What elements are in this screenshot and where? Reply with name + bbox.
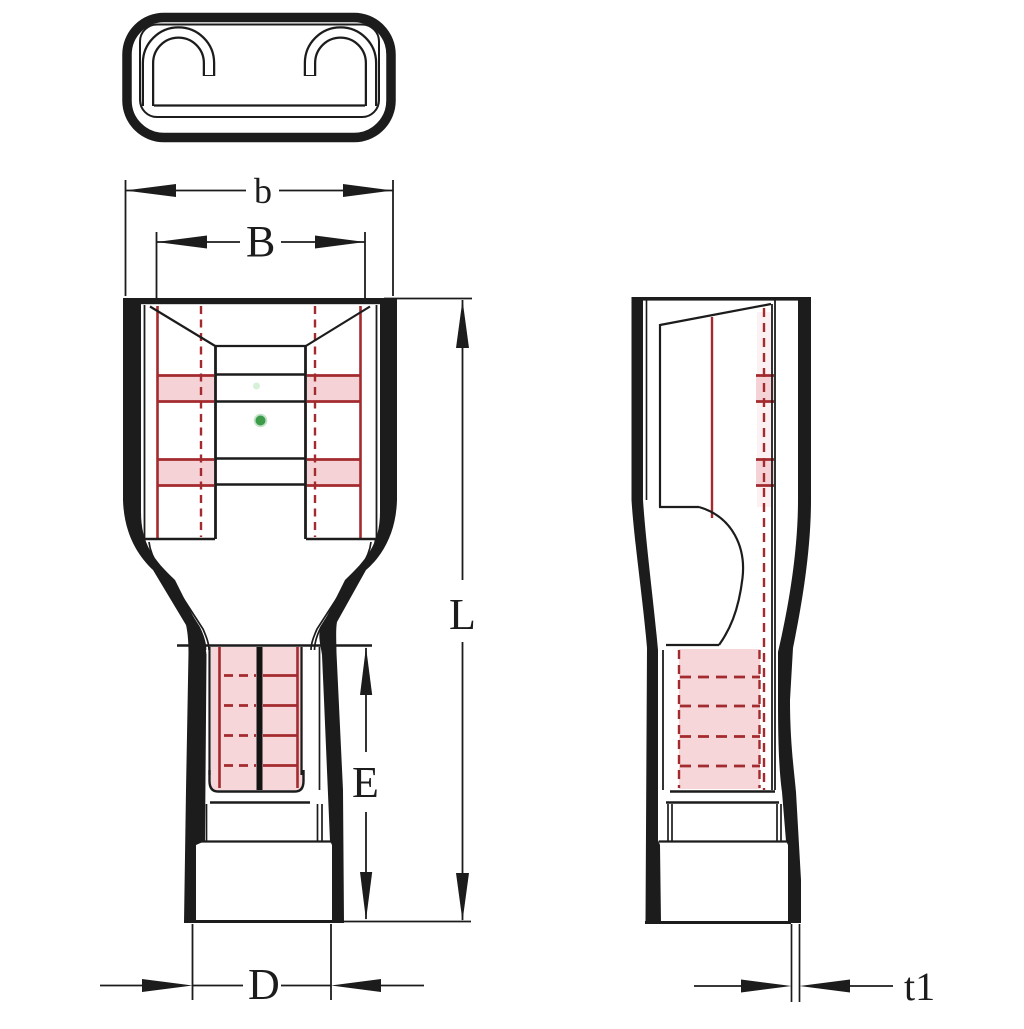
svg-text:D: D	[248, 960, 280, 1009]
svg-text:E: E	[352, 758, 379, 807]
svg-text:t1: t1	[904, 964, 935, 1009]
svg-text:L: L	[449, 590, 476, 639]
svg-text:B: B	[246, 217, 275, 266]
svg-text:b: b	[254, 171, 272, 211]
